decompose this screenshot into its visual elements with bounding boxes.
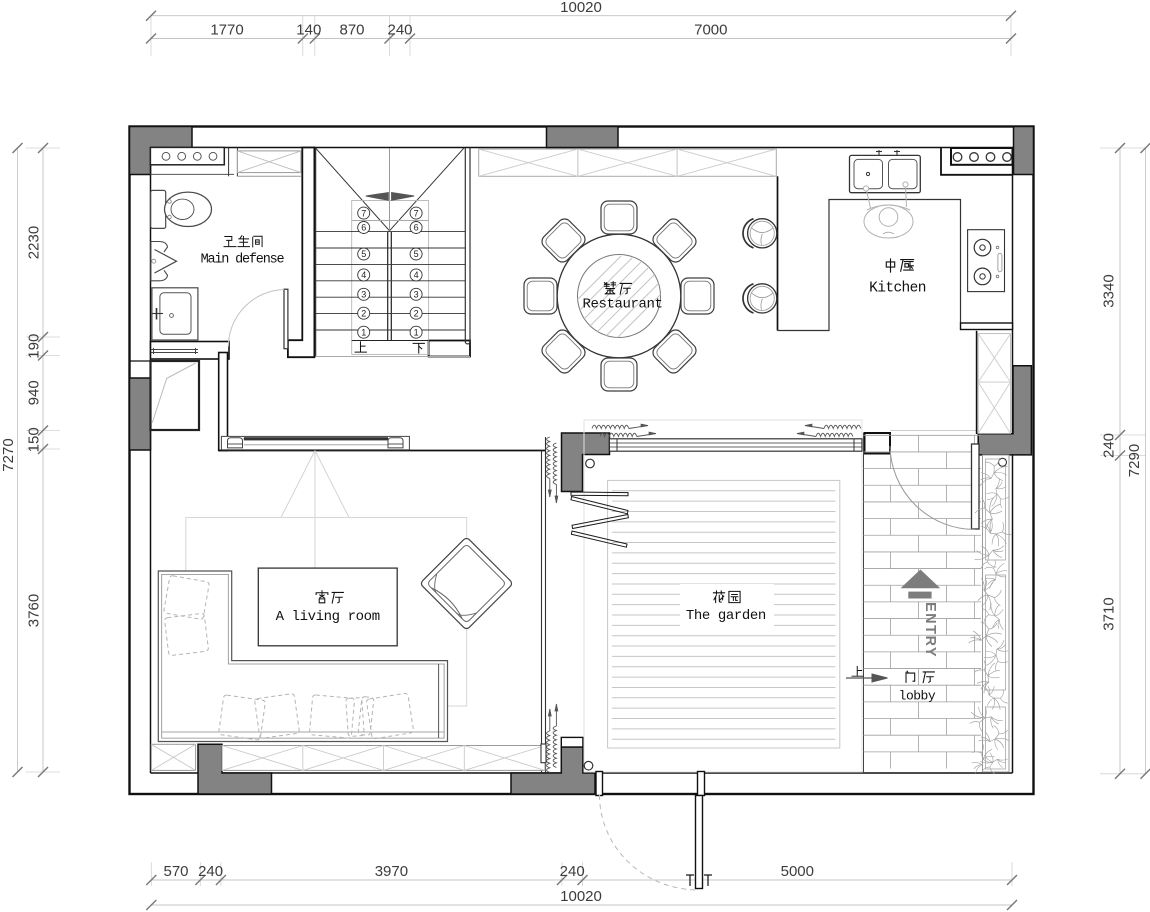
svg-text:ENTRY: ENTRY <box>922 602 938 658</box>
svg-text:lobby: lobby <box>899 689 936 704</box>
svg-text:2230: 2230 <box>26 226 43 259</box>
svg-text:Main defense: Main defense <box>201 253 285 268</box>
svg-text:2: 2 <box>414 308 419 318</box>
svg-text:A living room: A living room <box>276 609 380 625</box>
svg-text:190: 190 <box>26 334 43 359</box>
svg-text:4: 4 <box>414 270 419 280</box>
svg-text:3340: 3340 <box>1101 274 1118 307</box>
svg-text:140: 140 <box>296 22 321 39</box>
svg-text:3710: 3710 <box>1101 597 1118 630</box>
svg-text:3: 3 <box>414 290 419 300</box>
svg-text:5: 5 <box>414 249 419 259</box>
svg-text:5000: 5000 <box>781 863 814 880</box>
svg-text:3760: 3760 <box>26 594 43 627</box>
svg-text:240: 240 <box>1101 433 1118 458</box>
svg-text:2: 2 <box>361 308 366 318</box>
svg-text:7000: 7000 <box>694 22 727 39</box>
svg-text:10020: 10020 <box>560 0 602 16</box>
svg-text:7: 7 <box>361 208 366 218</box>
svg-text:4: 4 <box>361 270 366 280</box>
svg-text:1770: 1770 <box>210 22 243 39</box>
svg-text:Restaurant: Restaurant <box>582 297 662 313</box>
svg-text:6: 6 <box>361 223 366 233</box>
svg-text:240: 240 <box>387 22 412 39</box>
svg-text:7: 7 <box>414 208 419 218</box>
svg-text:10020: 10020 <box>560 888 602 905</box>
svg-text:5: 5 <box>361 249 366 259</box>
svg-text:3: 3 <box>361 290 366 300</box>
svg-text:7270: 7270 <box>0 438 17 471</box>
svg-text:1: 1 <box>361 327 366 337</box>
svg-text:6: 6 <box>414 223 419 233</box>
svg-text:870: 870 <box>339 22 364 39</box>
svg-text:1: 1 <box>414 327 419 337</box>
svg-text:240: 240 <box>560 863 585 880</box>
svg-text:570: 570 <box>163 863 188 880</box>
svg-text:7290: 7290 <box>1126 444 1143 477</box>
svg-text:Kitchen: Kitchen <box>869 281 926 297</box>
svg-text:3970: 3970 <box>375 863 408 880</box>
svg-text:The garden: The garden <box>686 608 766 624</box>
svg-text:150: 150 <box>26 427 43 452</box>
svg-text:940: 940 <box>26 380 43 405</box>
svg-text:240: 240 <box>198 863 223 880</box>
